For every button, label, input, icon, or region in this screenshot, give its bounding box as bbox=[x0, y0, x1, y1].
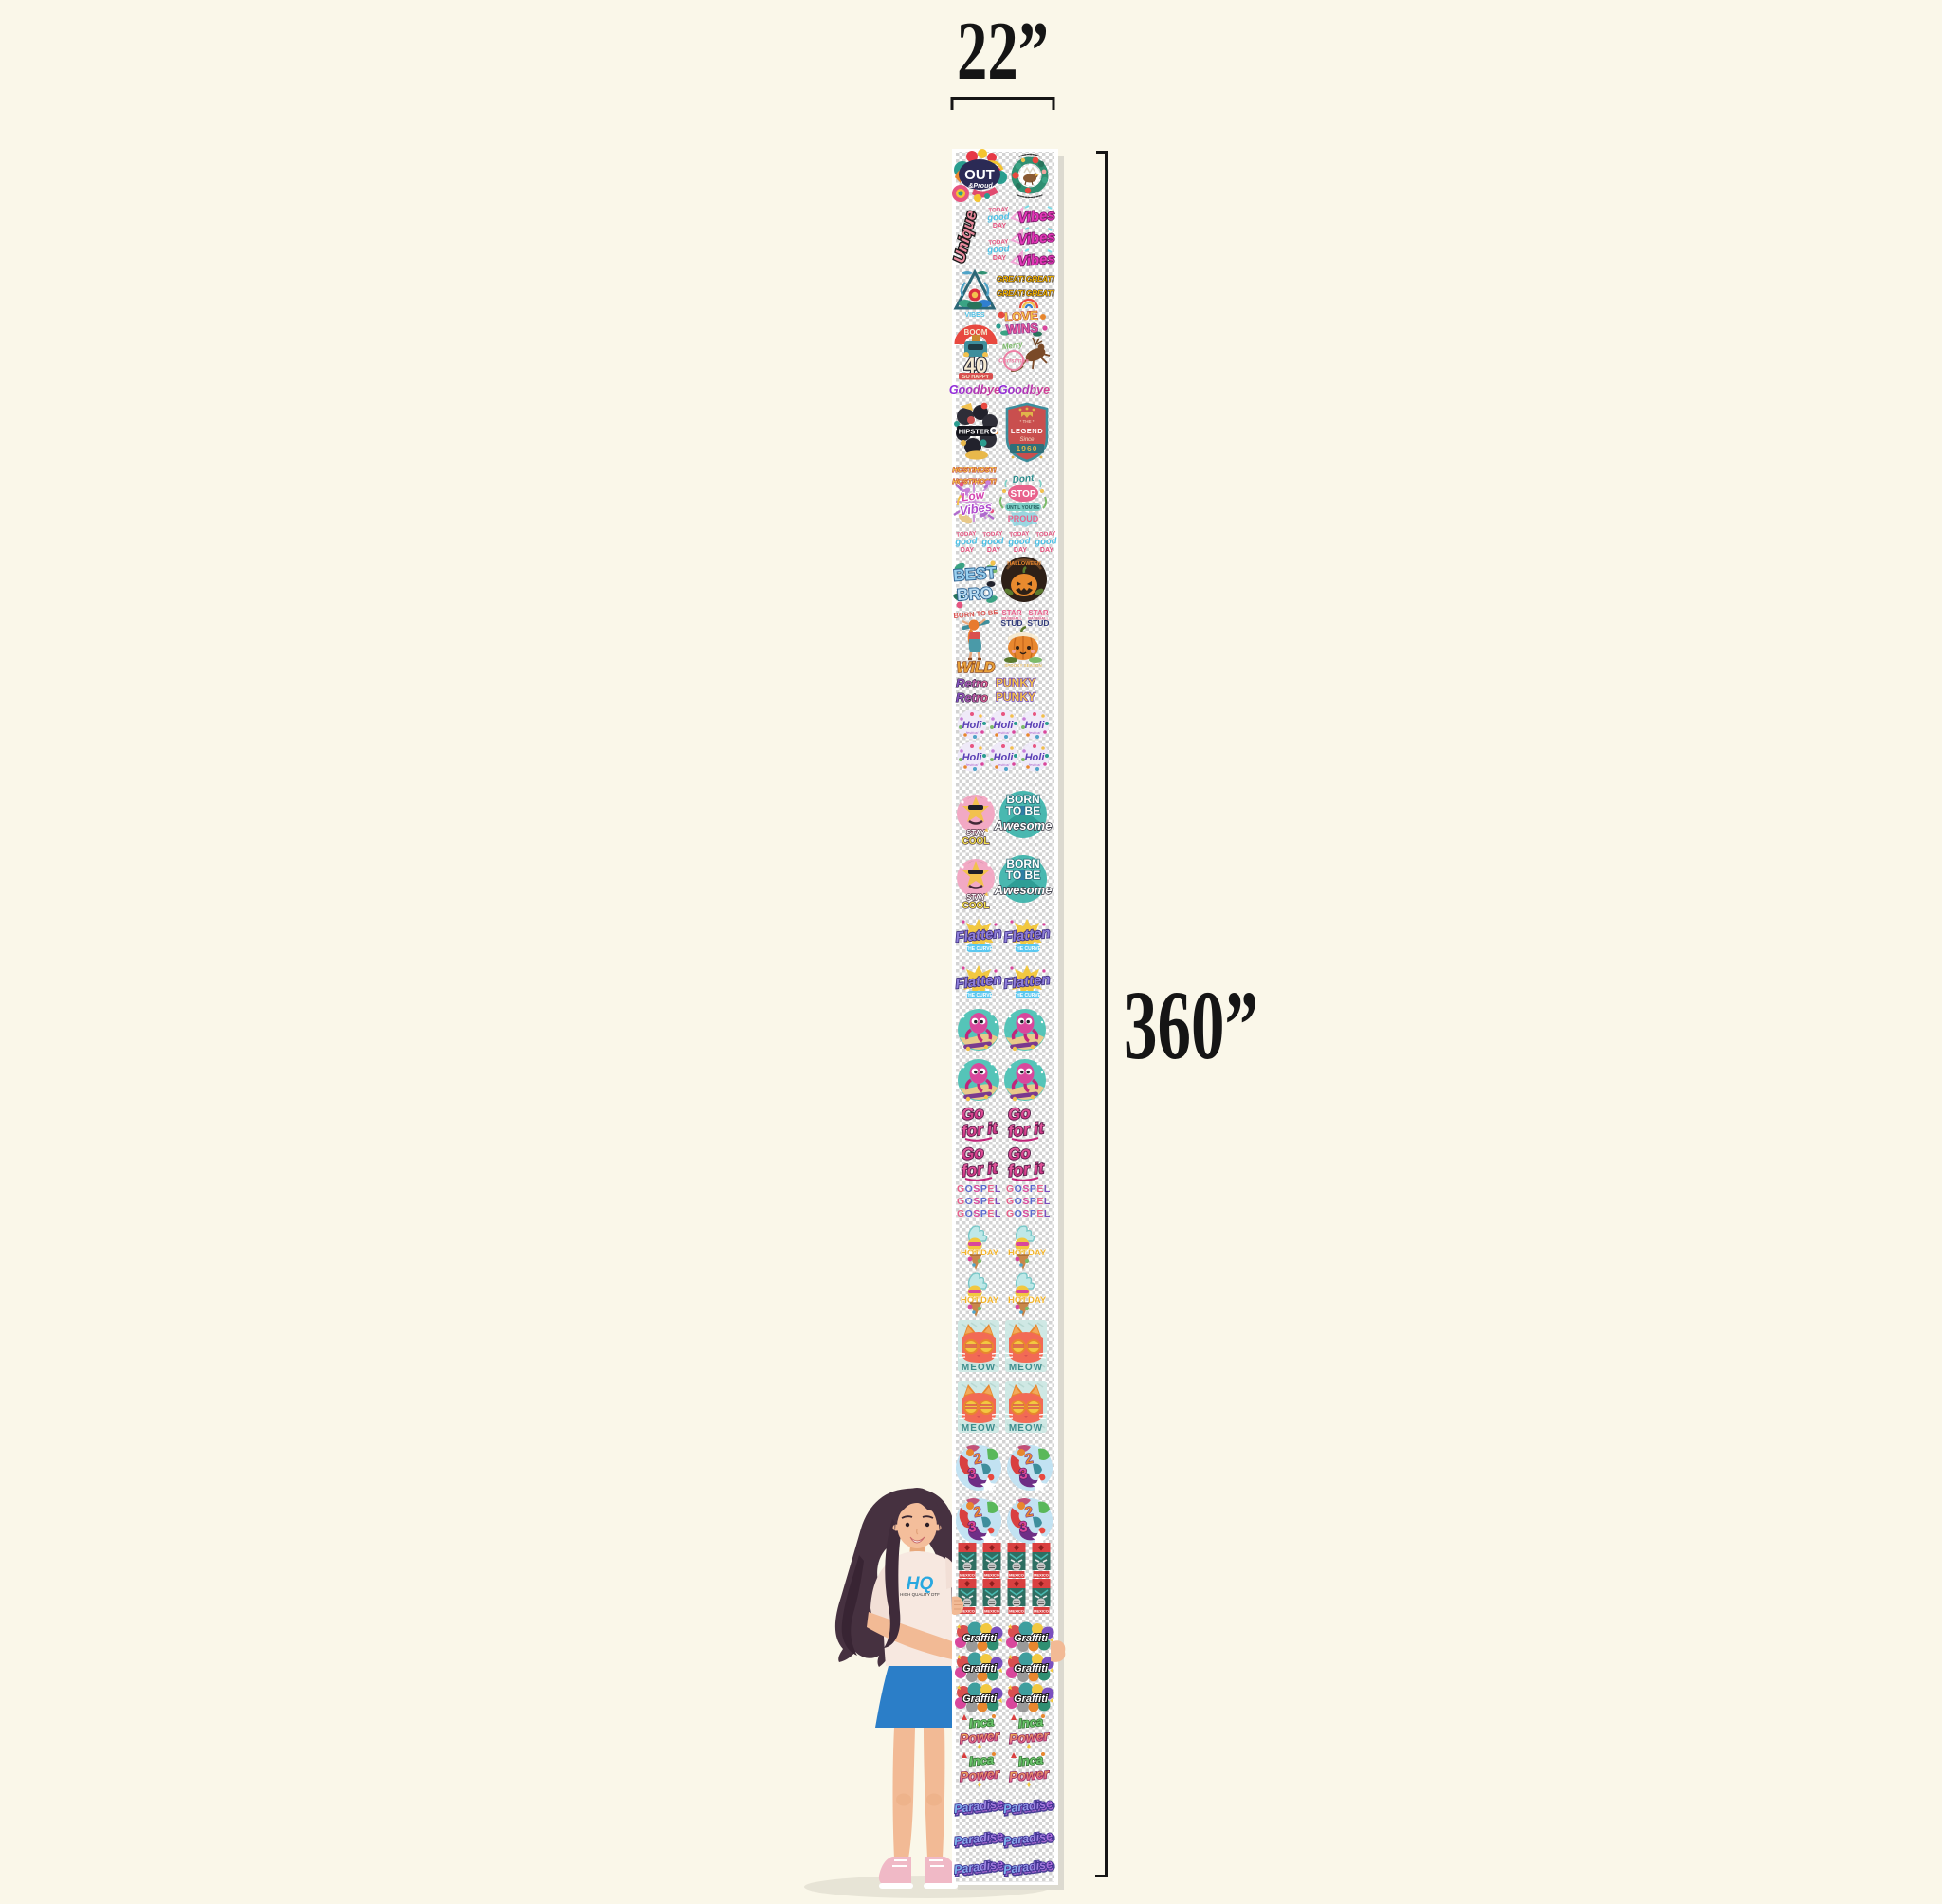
svg-text:360”: 360” bbox=[1124, 971, 1258, 1080]
svg-text:HQ: HQ bbox=[907, 1574, 934, 1594]
svg-text:HIGH QUALITY DTF: HIGH QUALITY DTF bbox=[900, 1592, 940, 1597]
svg-text:22”: 22” bbox=[957, 6, 1049, 98]
